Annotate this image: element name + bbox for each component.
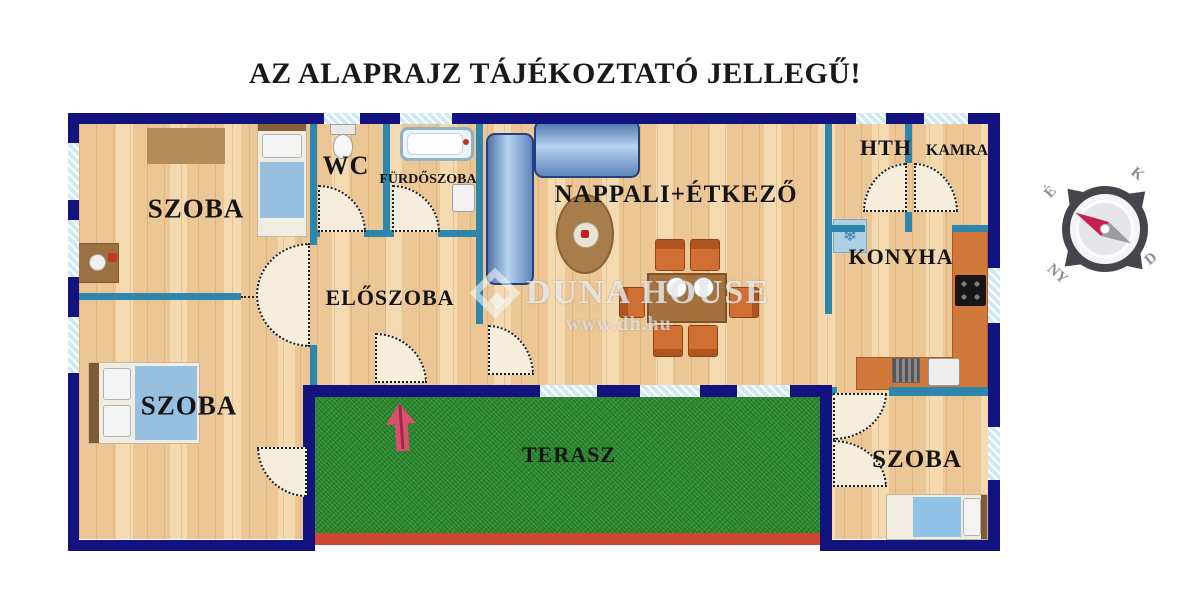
window	[856, 113, 886, 124]
window	[68, 317, 79, 373]
window	[988, 268, 1000, 323]
window	[324, 113, 360, 124]
window	[68, 143, 79, 200]
inner-wall	[310, 124, 317, 245]
bed-headboard	[89, 363, 99, 443]
pillow-icon	[103, 368, 131, 400]
pillow-icon	[103, 405, 131, 437]
disclaimer-title: AZ ALAPRAJZ TÁJÉKOZTATÓ JELLEGŰ!	[70, 57, 1040, 91]
inner-wall	[825, 124, 832, 314]
window	[68, 220, 79, 277]
window	[924, 113, 968, 124]
terrace-door-window	[540, 385, 597, 397]
bed-icon	[257, 121, 307, 237]
dish-rack-icon	[892, 358, 920, 383]
blanket-icon	[260, 162, 304, 218]
room-label-living-dining: NAPPALI+ÉTKEZŐ	[554, 181, 797, 209]
room-label-bathroom: FÜRDŐSZOBA	[379, 172, 476, 188]
sofa-icon	[486, 133, 534, 285]
pillow-icon	[963, 498, 981, 536]
sink-icon	[928, 358, 960, 386]
entrance-arrow-icon	[384, 402, 417, 454]
inner-wall	[889, 387, 988, 396]
pillow-icon	[262, 134, 302, 158]
outer-wall-bottom-left	[68, 540, 315, 551]
inner-wall	[364, 230, 394, 237]
watermark-logo-icon	[470, 268, 524, 322]
bathtub-basin	[407, 133, 463, 155]
terrace-wall-right	[820, 385, 832, 551]
washbasin-icon	[452, 184, 475, 212]
watermark-brand: DUNA HOUSE	[526, 274, 770, 312]
rug-icon	[147, 128, 225, 164]
terrace-edge	[315, 533, 820, 545]
faucet-icon	[463, 139, 469, 145]
chair-icon	[690, 239, 720, 271]
room-label-bedroom-br: SZOBA	[872, 446, 962, 474]
room-label-terrace: TERASZ	[522, 442, 616, 468]
desk-lamp-icon	[89, 254, 106, 271]
inner-wall	[905, 212, 912, 225]
bed-headboard	[981, 495, 987, 539]
desk-item-red	[108, 253, 117, 262]
inner-wall	[79, 293, 241, 300]
room-label-bedroom-bl: SZOBA	[141, 391, 238, 422]
chair-icon	[655, 239, 685, 271]
room-label-bedroom-tl: SZOBA	[148, 194, 245, 225]
outer-wall-right	[988, 113, 1000, 551]
room-label-hall: ELŐSZOBA	[325, 285, 454, 311]
blanket-icon	[913, 497, 961, 537]
window	[988, 427, 1000, 480]
terrace-door-window	[640, 385, 700, 397]
room-label-hth: HTH	[860, 135, 912, 161]
inner-wall	[438, 230, 483, 237]
room-label-kitchen: KONYHA	[849, 244, 954, 270]
room-label-wc: WC	[323, 151, 370, 181]
terrace-door-window	[737, 385, 790, 397]
single-bed-icon	[886, 494, 988, 540]
inner-wall	[825, 225, 865, 232]
flower-icon	[581, 230, 589, 238]
window	[400, 113, 452, 124]
stove-icon	[955, 275, 986, 306]
floorplan-page: { "title": "AZ ALAPRAJZ TÁJÉKOZTATÓ JELL…	[0, 0, 1200, 600]
inner-wall	[905, 225, 912, 232]
bathtub-icon	[400, 127, 474, 161]
room-label-pantry: KAMRA	[926, 142, 988, 160]
chair-icon	[688, 325, 718, 357]
inner-wall	[952, 225, 988, 232]
watermark-url: www.dh.hu	[566, 313, 672, 336]
inner-wall	[310, 345, 317, 385]
outer-wall-bottom-right	[820, 540, 1000, 551]
sofa-icon	[534, 120, 640, 178]
